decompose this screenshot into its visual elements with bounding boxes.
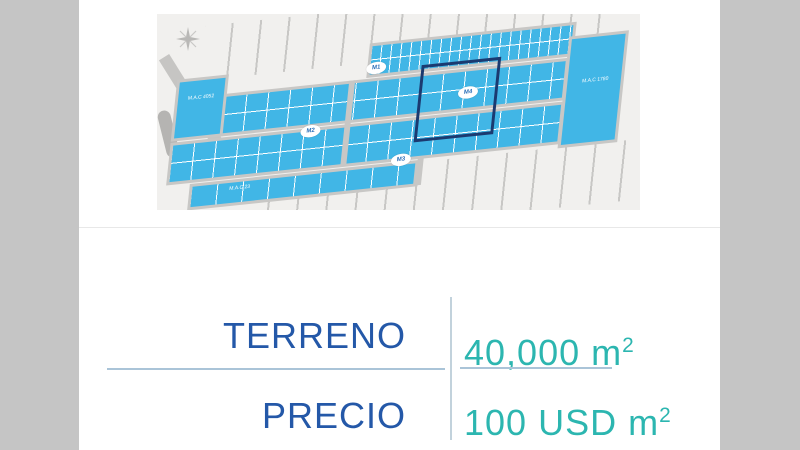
terreno-label: TERRENO <box>200 318 406 354</box>
cross-road-2 <box>415 156 424 185</box>
selected-lot-outline <box>414 57 502 143</box>
left-letterbox <box>0 0 79 450</box>
column-divider <box>450 297 452 440</box>
precio-value-text: 100 USD m <box>464 402 659 443</box>
slide: M1 M2 M3 M4 M.A.C 4052 M.A.C 1780 M.A.C … <box>0 0 800 450</box>
terreno-value-sup: 2 <box>622 334 635 357</box>
precio-value: 100 USD m2 <box>464 398 672 441</box>
value-underline <box>460 367 612 369</box>
label-underline <box>107 368 445 370</box>
precio-label: PRECIO <box>200 398 406 434</box>
right-letterbox <box>720 0 800 450</box>
section-divider <box>79 227 720 228</box>
precio-value-sup: 2 <box>659 404 672 427</box>
macro-lot-west <box>174 78 226 139</box>
master-plan-map: M1 M2 M3 M4 M.A.C 4052 M.A.C 1780 M.A.C … <box>157 14 640 210</box>
macro-lot-east <box>561 34 626 145</box>
terreno-value: 40,000 m2 <box>464 328 635 371</box>
compass-icon <box>175 26 201 52</box>
